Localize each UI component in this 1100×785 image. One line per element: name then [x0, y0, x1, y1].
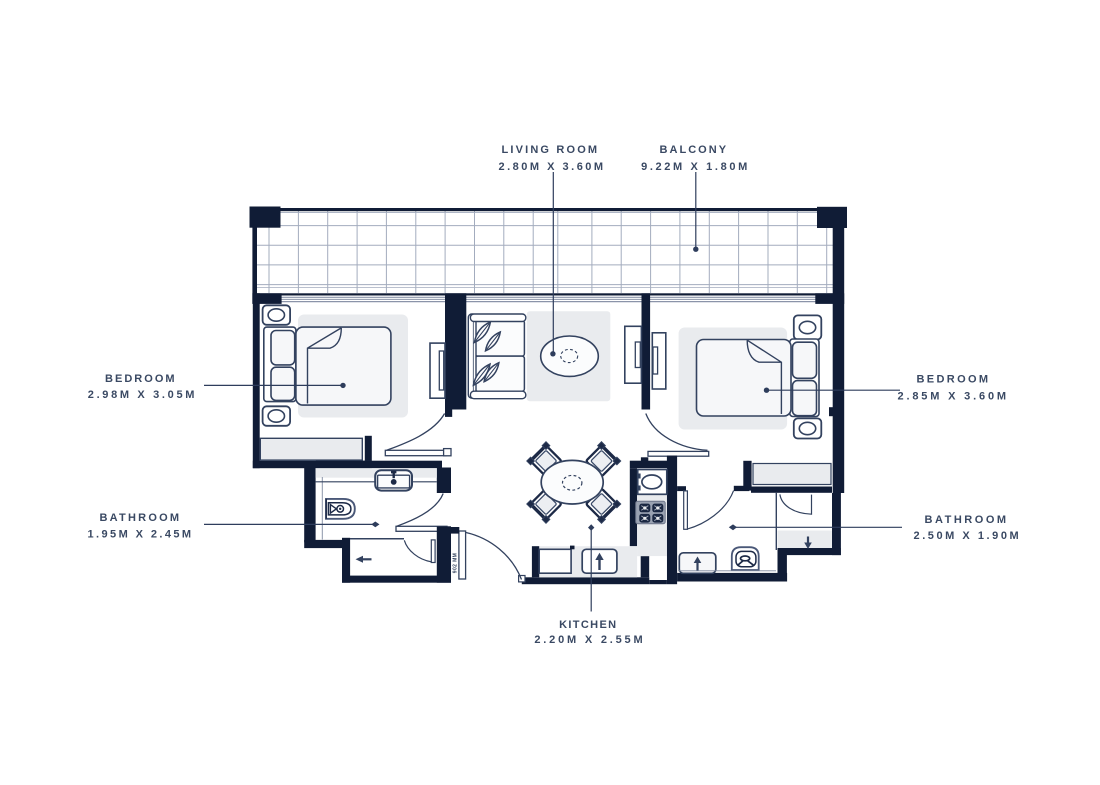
svg-text:1.95M X 2.45M: 1.95M X 2.45M — [88, 528, 194, 540]
svg-text:BATHROOM: BATHROOM — [100, 512, 182, 524]
svg-text:2.50M X 1.90M: 2.50M X 1.90M — [914, 530, 1022, 542]
svg-text:BATHROOM: BATHROOM — [925, 514, 1009, 526]
svg-text:2.98M X 3.05M: 2.98M X 3.05M — [88, 389, 197, 401]
svg-text:2.85M X 3.60M: 2.85M X 3.60M — [898, 390, 1009, 402]
svg-text:902 MM: 902 MM — [453, 553, 459, 573]
svg-text:BALCONY: BALCONY — [660, 144, 729, 156]
svg-text:BEDROOM: BEDROOM — [917, 374, 991, 386]
svg-text:KITCHEN: KITCHEN — [559, 619, 618, 631]
svg-text:BEDROOM: BEDROOM — [105, 373, 177, 385]
svg-text:2.80M X 3.60M: 2.80M X 3.60M — [499, 161, 606, 173]
svg-text:9.22M X 1.80M: 9.22M X 1.80M — [641, 161, 750, 173]
svg-text:2.20M X 2.55M: 2.20M X 2.55M — [534, 634, 645, 646]
svg-text:LIVING ROOM: LIVING ROOM — [502, 144, 600, 156]
